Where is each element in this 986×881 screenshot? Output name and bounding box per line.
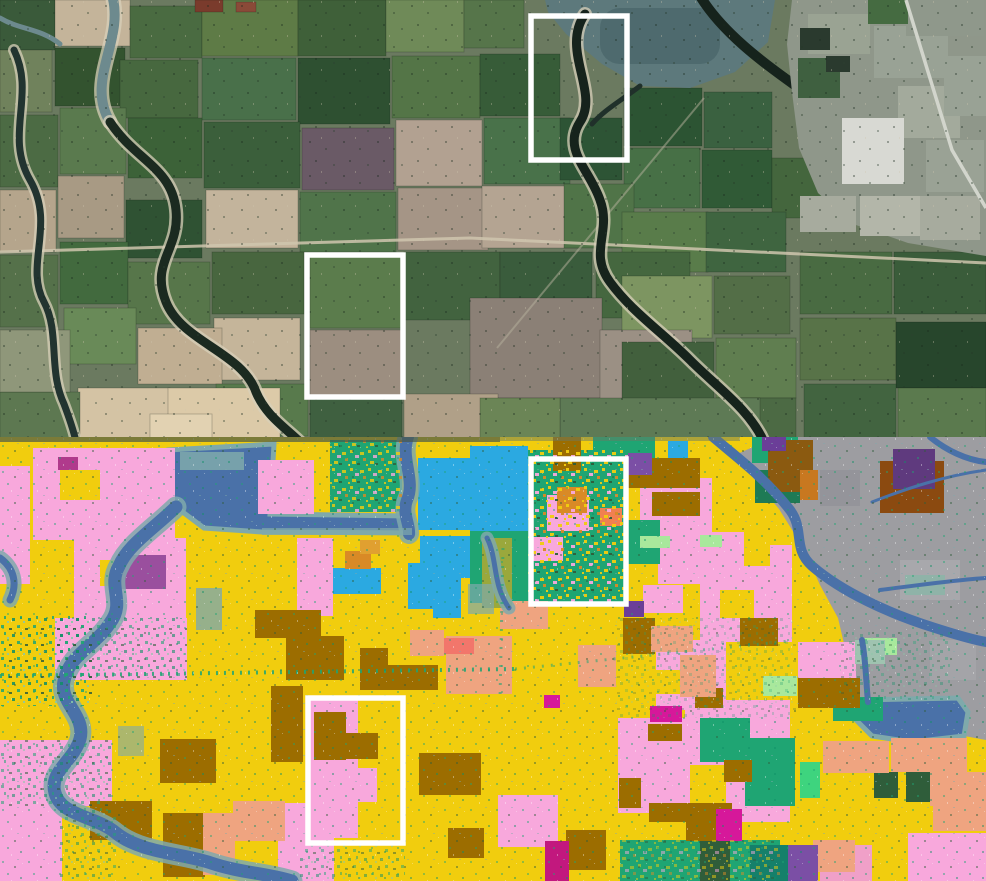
cls-speckle-overlay — [0, 437, 986, 881]
sat-texture-overlay — [0, 0, 986, 440]
satellite-panel — [0, 0, 986, 444]
screenshot-root — [0, 0, 986, 881]
scene-svg — [0, 0, 986, 881]
cls-top-seam — [0, 437, 500, 442]
classification-panel — [0, 437, 986, 881]
cls-top-seam — [500, 437, 740, 441]
